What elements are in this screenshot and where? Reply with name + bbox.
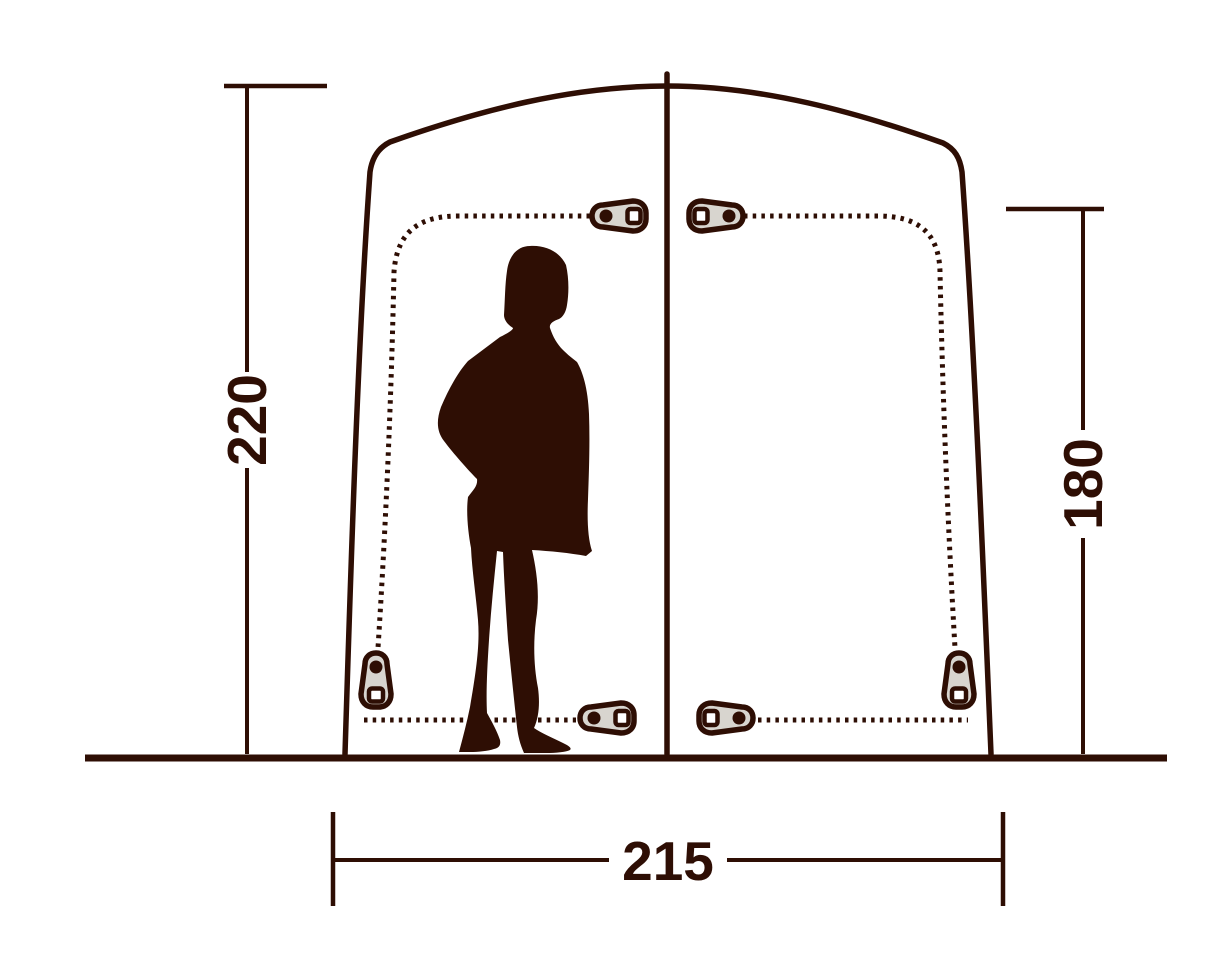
dimension-height-right: 180 (1006, 209, 1114, 754)
dimension-label-height-right: 180 (1052, 438, 1114, 530)
dimension-width-bottom: 215 (333, 812, 1003, 906)
zipper-pull-icon (699, 703, 753, 733)
zipper-pull-icon (944, 653, 974, 707)
dimension-height-left: 220 (216, 86, 327, 754)
person-silhouette (438, 246, 592, 753)
dimension-label-width-bottom: 215 (622, 830, 714, 892)
diagram-canvas: 220 180 215 (0, 0, 1230, 954)
zipper-pull-icon (592, 201, 646, 231)
zipper-pull-icon (361, 653, 391, 707)
dimension-label-height-left: 220 (216, 374, 278, 466)
tent-dimension-diagram: 220 180 215 (0, 0, 1230, 954)
zipper-pull-icon (689, 201, 743, 231)
zipper-pull-icon (580, 703, 634, 733)
zipper-track-right-door-top (744, 216, 955, 648)
